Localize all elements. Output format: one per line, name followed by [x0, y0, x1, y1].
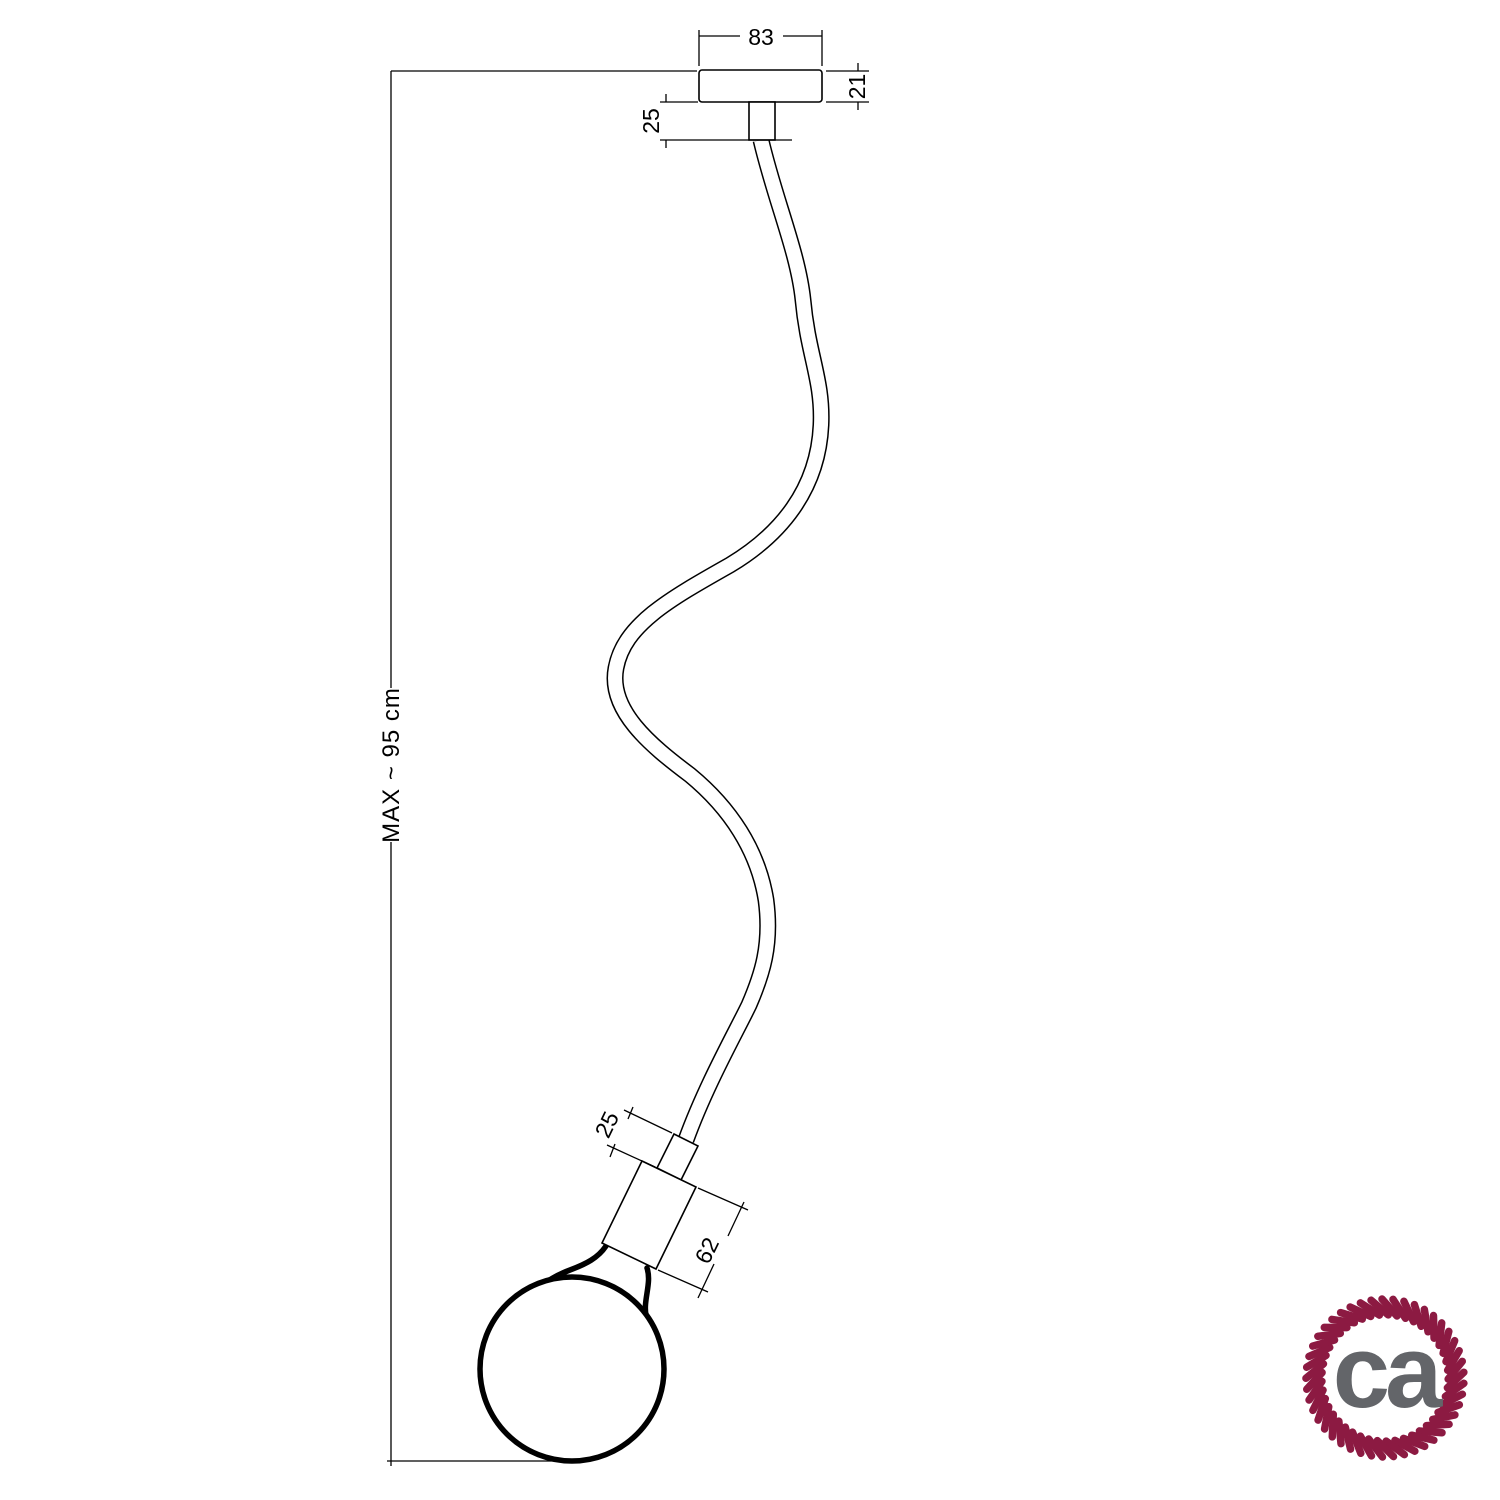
- dimension-line: [628, 1107, 633, 1119]
- dimension-label-canopy-height: 21: [844, 74, 870, 100]
- dimension-label-canopy-width: 83: [748, 24, 774, 50]
- dimension-socket-cable-clamp: 25: [590, 1107, 672, 1167]
- dimension-label-max-length: MAX ~ 95 cm: [378, 687, 405, 843]
- dimension-line: [610, 1144, 615, 1157]
- dimension-label-top-clamp: 25: [638, 108, 664, 134]
- logo-text: ca: [1333, 1314, 1443, 1429]
- lamp-holder: [602, 1134, 698, 1269]
- drawing-canvas: 83 21 25 MAX ~ 95 cm 25 62: [0, 0, 1500, 1500]
- extension-line: [607, 1145, 655, 1167]
- extension-line: [624, 1110, 672, 1133]
- dimension-label-socket-length: 62: [690, 1233, 725, 1267]
- top-cable-clamp: [749, 102, 775, 140]
- flexible-stem-fill: [615, 140, 821, 1140]
- brand-logo: ca: [1305, 1298, 1465, 1458]
- extension-line: [698, 1188, 748, 1210]
- light-bulb: [480, 1277, 664, 1461]
- dimension-canopy-width: 83: [699, 24, 822, 66]
- flexible-stem-outline: [615, 140, 821, 1140]
- extension-line: [658, 1270, 708, 1292]
- ceiling-rose: [699, 70, 822, 140]
- dimension-label-socket-clamp: 25: [590, 1107, 625, 1141]
- dimension-line: [728, 1202, 744, 1236]
- dimension-canopy-height: 21: [826, 63, 870, 110]
- dimension-line: [698, 1264, 714, 1298]
- flexible-stem-tube: [615, 140, 821, 1140]
- canopy-body: [699, 70, 822, 102]
